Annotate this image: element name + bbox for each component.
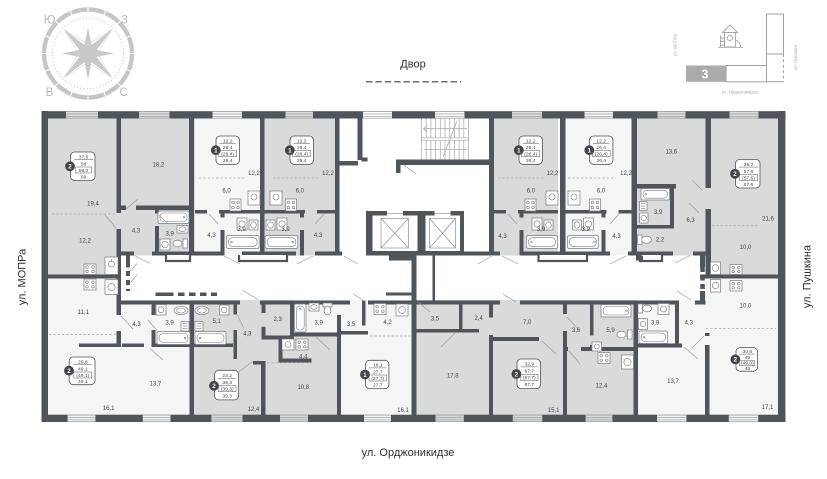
svg-text:49,1: 49,1	[78, 379, 88, 385]
svg-text:3,9: 3,9	[582, 227, 591, 233]
svg-text:12,2: 12,2	[248, 171, 260, 177]
svg-text:4,3: 4,3	[685, 321, 694, 327]
svg-text:3,9: 3,9	[315, 321, 324, 327]
svg-text:(67,7): (67,7)	[523, 375, 536, 381]
svg-text:26,4: 26,4	[297, 158, 307, 164]
svg-text:10,8: 10,8	[297, 385, 309, 391]
svg-text:18,2: 18,2	[153, 163, 165, 169]
svg-text:57,6: 57,6	[744, 182, 754, 188]
svg-text:4,3: 4,3	[498, 234, 507, 240]
svg-text:6,3: 6,3	[686, 218, 695, 224]
svg-text:12,2: 12,2	[547, 171, 559, 177]
svg-text:4,3: 4,3	[207, 233, 216, 239]
svg-text:26,4: 26,4	[297, 145, 307, 151]
svg-text:13,6: 13,6	[665, 150, 677, 156]
svg-text:3,5: 3,5	[347, 322, 356, 328]
svg-text:26,4: 26,4	[223, 145, 233, 151]
svg-text:4,4: 4,4	[299, 355, 308, 361]
svg-text:ул. Орджоникидзе: ул. Орджоникидзе	[362, 447, 455, 459]
svg-text:2: 2	[515, 371, 519, 378]
svg-text:3,6: 3,6	[572, 328, 581, 334]
svg-text:3,9: 3,9	[237, 227, 246, 233]
svg-text:16,1: 16,1	[103, 406, 115, 412]
svg-text:49: 49	[745, 366, 751, 372]
svg-text:З: З	[121, 15, 128, 27]
svg-text:4,3: 4,3	[243, 332, 252, 338]
svg-text:ул. Орджоникидзе: ул. Орджоникидзе	[722, 90, 759, 95]
svg-text:12,2: 12,2	[79, 239, 91, 245]
svg-text:4,2: 4,2	[383, 320, 392, 326]
svg-text:26,4: 26,4	[596, 145, 606, 151]
svg-text:3,9: 3,9	[651, 321, 660, 327]
svg-text:(26,4): (26,4)	[524, 151, 537, 157]
svg-text:27,7: 27,7	[373, 369, 383, 375]
svg-text:27,7: 27,7	[373, 382, 383, 388]
svg-text:19,4: 19,4	[87, 202, 99, 208]
svg-text:2,3: 2,3	[274, 317, 283, 323]
svg-text:12,4: 12,4	[248, 407, 260, 413]
svg-text:39,3: 39,3	[222, 380, 232, 386]
svg-text:2: 2	[67, 368, 71, 375]
svg-text:1: 1	[517, 148, 521, 155]
svg-text:58,0: 58,0	[79, 168, 89, 174]
svg-text:12,2: 12,2	[322, 171, 334, 177]
svg-text:10,0: 10,0	[740, 245, 752, 251]
svg-text:2,2: 2,2	[656, 238, 665, 244]
svg-text:(26,4): (26,4)	[221, 151, 234, 157]
svg-text:12,4: 12,4	[596, 384, 608, 390]
svg-text:1: 1	[288, 148, 292, 155]
svg-text:3,9: 3,9	[166, 232, 175, 238]
svg-text:4,3: 4,3	[132, 229, 141, 235]
svg-text:13,7: 13,7	[667, 379, 679, 385]
svg-text:26,4: 26,4	[596, 158, 606, 164]
svg-text:67,7: 67,7	[525, 369, 535, 375]
svg-text:Ю: Ю	[44, 15, 56, 27]
svg-text:3,9: 3,9	[165, 321, 174, 327]
svg-text:2,4: 2,4	[475, 316, 484, 322]
svg-text:ул. Пушкина: ул. Пушкина	[802, 244, 814, 308]
svg-text:ул. МОПРа: ул. МОПРа	[673, 33, 678, 56]
svg-text:57,6: 57,6	[744, 169, 754, 175]
svg-text:2: 2	[733, 171, 737, 178]
svg-text:17,1: 17,1	[762, 405, 774, 411]
svg-text:(49,0): (49,0)	[741, 361, 754, 367]
svg-text:Двор: Двор	[400, 59, 425, 71]
svg-text:21,6: 21,6	[762, 217, 774, 223]
svg-text:58: 58	[81, 175, 87, 181]
svg-text:16,1: 16,1	[397, 408, 409, 414]
svg-text:4,3: 4,3	[612, 234, 621, 240]
svg-text:5,1: 5,1	[213, 319, 222, 325]
svg-text:(57,6): (57,6)	[742, 175, 755, 181]
svg-text:4,3: 4,3	[314, 233, 323, 239]
svg-text:1: 1	[214, 148, 218, 155]
svg-text:26,4: 26,4	[526, 158, 536, 164]
svg-text:ул. Пушкина: ул. Пушкина	[793, 45, 798, 70]
svg-text:58: 58	[81, 161, 87, 167]
svg-text:10,0: 10,0	[740, 304, 752, 310]
svg-text:13,7: 13,7	[150, 382, 162, 388]
svg-text:39,3: 39,3	[222, 393, 232, 399]
svg-text:С: С	[119, 87, 127, 99]
svg-text:3,9: 3,9	[537, 227, 546, 233]
svg-text:(26,4): (26,4)	[295, 151, 308, 157]
svg-text:17,8: 17,8	[447, 374, 459, 380]
svg-text:26,4: 26,4	[223, 158, 233, 164]
svg-text:6,0: 6,0	[296, 189, 305, 195]
svg-text:67,7: 67,7	[525, 382, 535, 388]
svg-text:2: 2	[68, 164, 72, 171]
svg-text:2: 2	[212, 383, 216, 390]
svg-text:3,9: 3,9	[281, 227, 290, 233]
svg-text:6,0: 6,0	[597, 189, 606, 195]
svg-text:3,9: 3,9	[654, 210, 663, 216]
svg-text:(49,1): (49,1)	[76, 373, 89, 379]
svg-text:1: 1	[363, 372, 367, 379]
svg-text:ул. МОПРа: ул. МОПРа	[17, 248, 29, 305]
svg-text:4,3: 4,3	[132, 322, 141, 328]
svg-text:(39,3): (39,3)	[221, 387, 234, 393]
svg-text:49,1: 49,1	[78, 366, 88, 372]
svg-text:3,5: 3,5	[431, 317, 440, 323]
svg-text:26,4: 26,4	[526, 145, 536, 151]
svg-text:15,1: 15,1	[548, 408, 560, 414]
svg-text:11,1: 11,1	[78, 310, 90, 316]
svg-text:2: 2	[734, 357, 738, 364]
svg-text:12,2: 12,2	[620, 171, 632, 177]
svg-text:6,0: 6,0	[222, 189, 231, 195]
svg-text:5,9: 5,9	[606, 328, 615, 334]
svg-text:В: В	[46, 87, 54, 99]
svg-text:7,0: 7,0	[523, 320, 532, 326]
svg-text:1: 1	[588, 148, 592, 155]
svg-text:3: 3	[702, 67, 709, 81]
svg-text:6,0: 6,0	[527, 189, 536, 195]
svg-text:(26,4): (26,4)	[595, 151, 608, 157]
svg-text:(27,7): (27,7)	[371, 376, 384, 382]
